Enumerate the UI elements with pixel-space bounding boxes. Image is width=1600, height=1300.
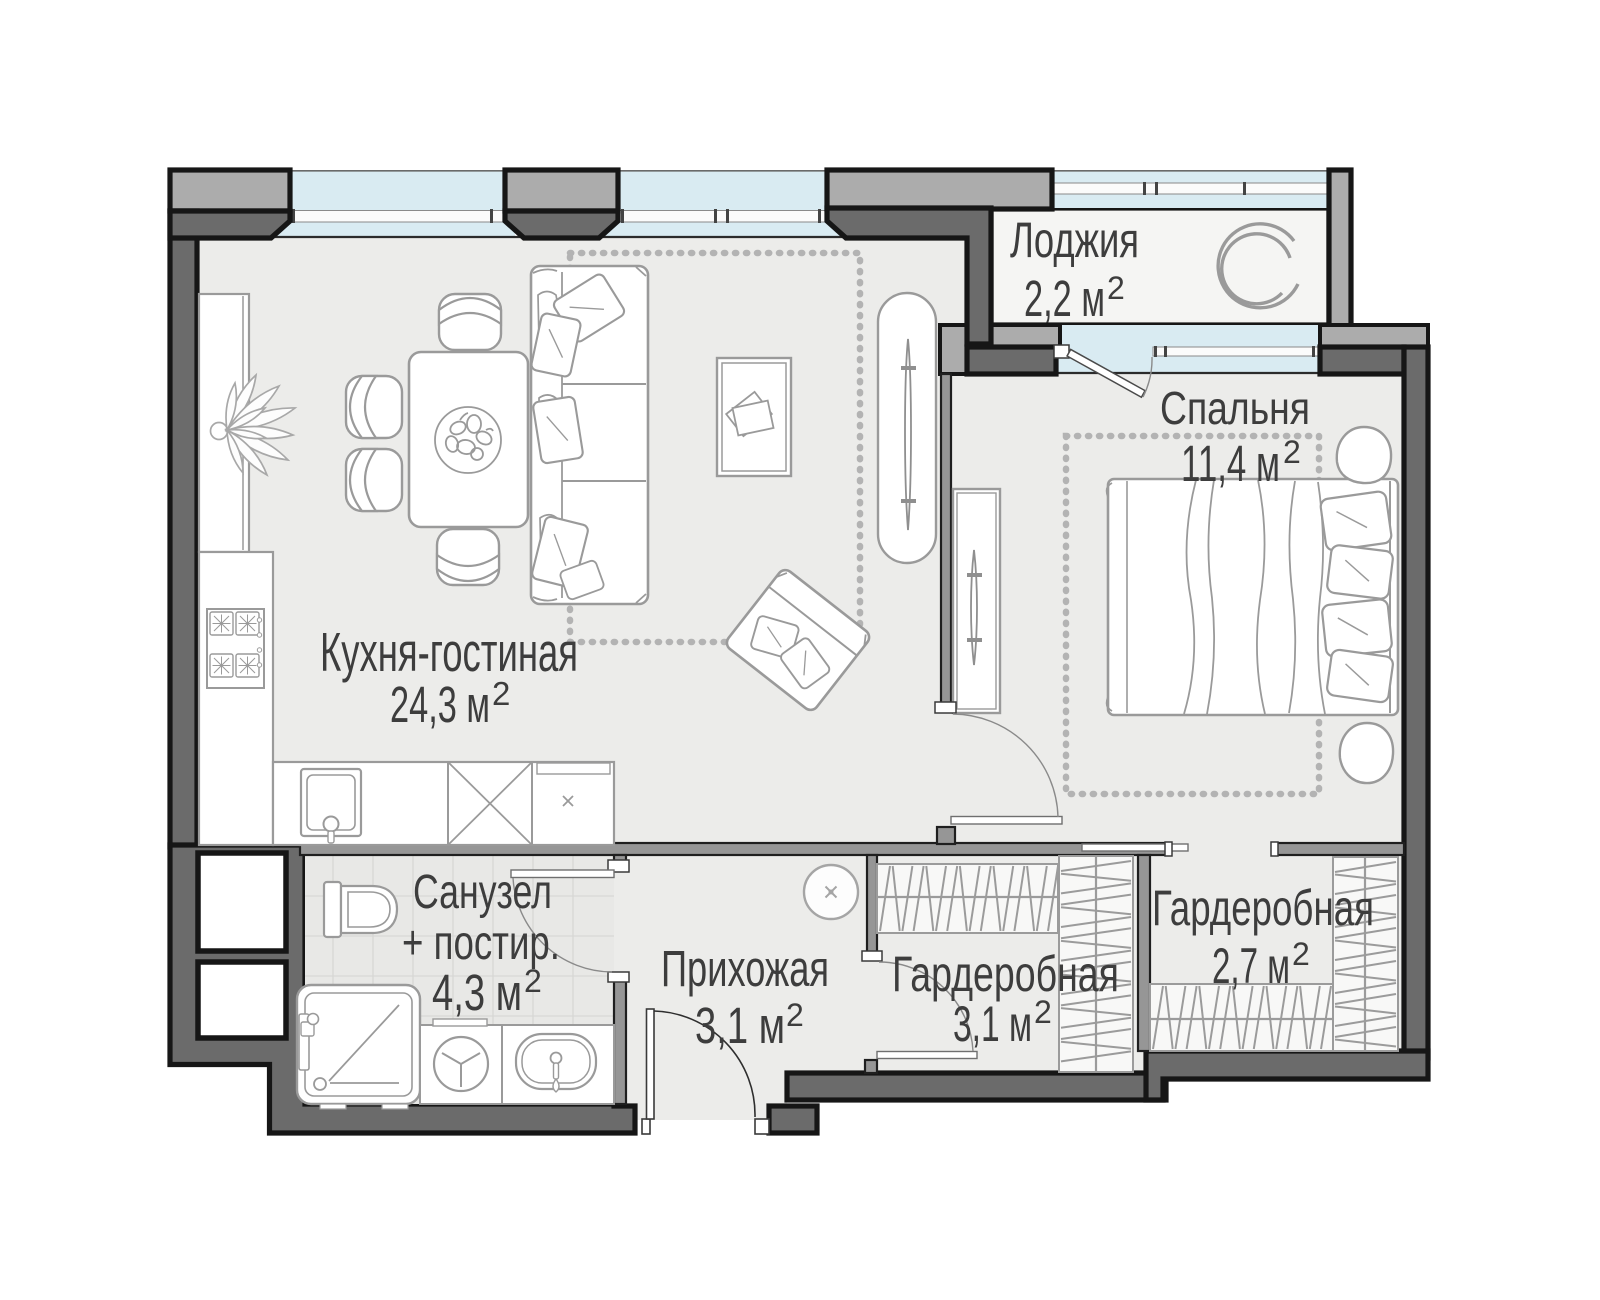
svg-text:2,7 м: 2,7 м <box>1212 938 1290 994</box>
svg-text:2: 2 <box>492 675 510 712</box>
svg-text:4,3 м: 4,3 м <box>432 964 522 1021</box>
svg-text:Прихожая: Прихожая <box>661 940 829 997</box>
svg-text:11,4 м: 11,4 м <box>1181 435 1280 492</box>
svg-text:Гардеробная: Гардеробная <box>1152 880 1374 936</box>
svg-text:2: 2 <box>786 997 804 1033</box>
svg-text:2: 2 <box>1283 434 1301 470</box>
svg-text:2: 2 <box>1107 270 1125 306</box>
svg-text:24,3 м: 24,3 м <box>390 676 490 733</box>
svg-text:Санузел: Санузел <box>413 866 552 919</box>
svg-text:2: 2 <box>1292 936 1310 972</box>
svg-text:Кухня-гостиная: Кухня-гостиная <box>320 621 578 683</box>
svg-text:2: 2 <box>1034 994 1052 1030</box>
svg-text:3,1 м: 3,1 м <box>953 996 1032 1052</box>
svg-text:3,1 м: 3,1 м <box>695 997 785 1054</box>
svg-text:Лоджия: Лоджия <box>1010 212 1139 268</box>
svg-text:Гардеробная: Гардеробная <box>892 946 1119 1002</box>
svg-text:Спальня: Спальня <box>1160 382 1310 434</box>
svg-text:2: 2 <box>524 963 542 999</box>
svg-text:2,2 м: 2,2 м <box>1024 270 1105 327</box>
